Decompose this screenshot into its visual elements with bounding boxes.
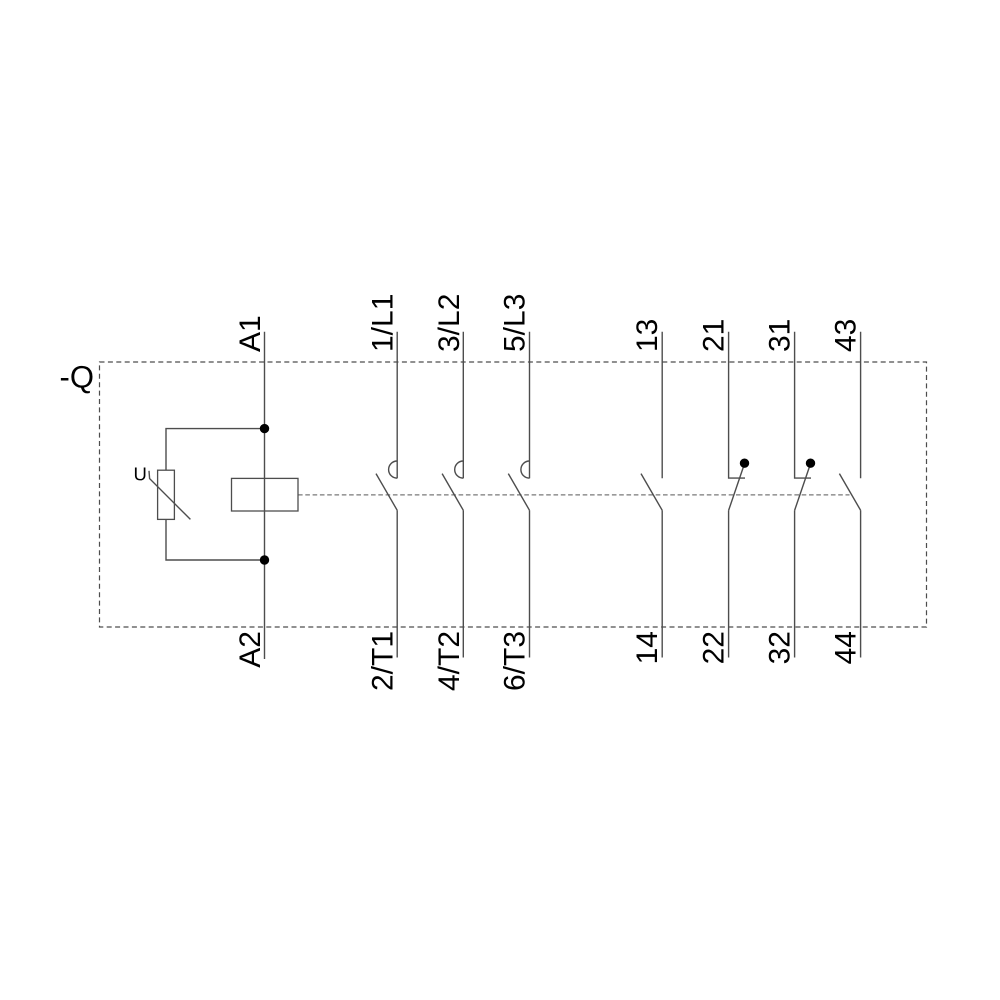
svg-text:5/L3: 5/L3 xyxy=(499,294,532,352)
svg-text:A1: A1 xyxy=(234,315,267,352)
svg-text:21: 21 xyxy=(698,319,731,352)
svg-text:31: 31 xyxy=(764,319,797,352)
svg-text:3/L2: 3/L2 xyxy=(433,294,466,352)
svg-text:2/T1: 2/T1 xyxy=(367,631,400,691)
svg-text:6/T3: 6/T3 xyxy=(499,631,532,691)
svg-text:-Q: -Q xyxy=(59,360,93,395)
svg-text:4/T2: 4/T2 xyxy=(433,631,466,691)
svg-text:13: 13 xyxy=(631,319,664,352)
svg-text:A2: A2 xyxy=(234,631,267,668)
svg-text:22: 22 xyxy=(698,631,731,664)
svg-text:14: 14 xyxy=(631,631,664,664)
svg-text:32: 32 xyxy=(764,631,797,664)
svg-text:1/L1: 1/L1 xyxy=(367,294,400,352)
svg-text:43: 43 xyxy=(830,319,863,352)
svg-text:U: U xyxy=(133,463,146,484)
svg-text:44: 44 xyxy=(830,631,863,664)
